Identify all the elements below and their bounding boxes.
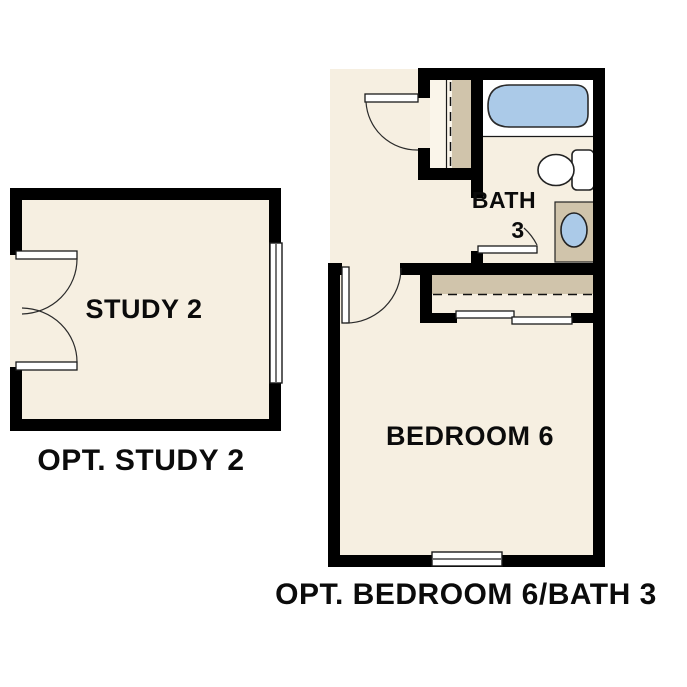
linen-closet: [430, 80, 471, 168]
bedroom-closet-shelf: [432, 275, 593, 294]
study-caption: OPT. STUDY 2: [37, 444, 244, 477]
closet-bypass-door-left: [456, 311, 514, 318]
bedroom-door-leaf: [342, 267, 349, 323]
floor-plan: STUDY 2 OPT. STUDY 2: [0, 0, 687, 687]
study-wall-left-lower: [10, 367, 22, 431]
linen-closet-bottom-wall: [418, 168, 473, 180]
entry-door-leaf: [365, 94, 418, 102]
suite-wall-top: [418, 68, 605, 80]
toilet-bowl: [538, 155, 574, 186]
study-unit: STUDY 2 OPT. STUDY 2: [10, 188, 282, 477]
closet-side-wall: [420, 263, 432, 323]
bath-wall-left: [471, 80, 483, 198]
study-door-leaf-bottom: [16, 362, 77, 370]
suite-wall-right: [593, 68, 605, 567]
suite-caption: OPT. BEDROOM 6/BATH 3: [275, 578, 657, 611]
vanity: [555, 202, 595, 262]
study-wall-left-upper: [10, 188, 22, 255]
bath-room-label: BATH: [472, 187, 536, 213]
tub-area: [483, 80, 593, 137]
study-room-label: STUDY 2: [85, 294, 202, 324]
vanity-sink: [561, 213, 587, 247]
bedroom-wall-left: [328, 263, 340, 567]
bedroom-window: [432, 552, 502, 566]
closet-bypass-door-right: [512, 317, 572, 324]
floor-plan-canvas: STUDY 2 OPT. STUDY 2: [0, 0, 687, 687]
study-wall-top: [10, 188, 281, 200]
linen-closet-shelf: [452, 80, 471, 168]
bedroom-room-label: BEDROOM 6: [386, 421, 554, 451]
closet-front-stub-right: [571, 313, 593, 323]
bath-door-leaf: [478, 246, 537, 253]
bathtub: [488, 85, 588, 127]
bath-room-number: 3: [511, 217, 524, 243]
study-door-leaf-top: [16, 251, 77, 259]
study-window: [270, 243, 282, 383]
bedroom-floor: [328, 263, 593, 555]
toilet-tank: [572, 150, 594, 190]
entry-door-jamb-top: [418, 80, 430, 98]
study-wall-bottom: [10, 419, 281, 431]
bedroom-bath-unit: BATH 3 BEDROOM 6 OPT. BEDROOM 6/BATH 3: [275, 68, 657, 611]
bedroom-wall-top-left-piece: [328, 263, 342, 275]
